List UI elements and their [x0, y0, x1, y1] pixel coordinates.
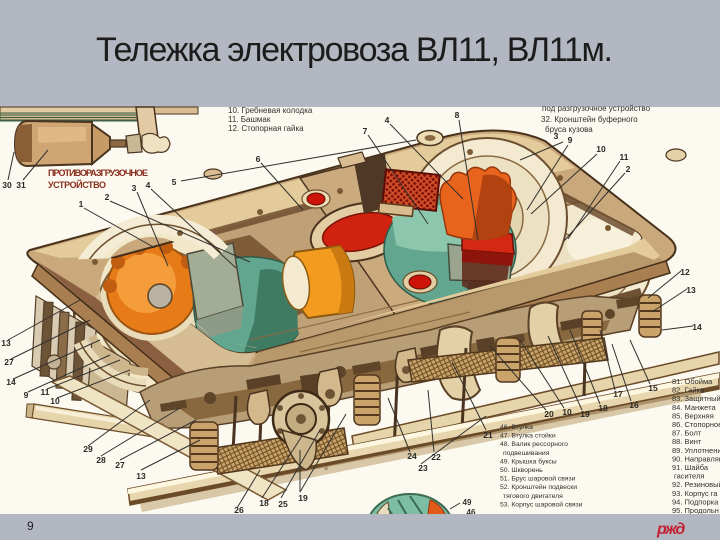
svg-text:50. Шкворень: 50. Шкворень — [500, 467, 543, 474]
svg-text:17: 17 — [613, 389, 623, 399]
svg-text:ржд: ржд — [656, 521, 685, 538]
svg-text:15: 15 — [648, 383, 658, 393]
svg-text:8: 8 — [455, 110, 460, 120]
svg-text:9: 9 — [24, 390, 29, 400]
svg-text:21: 21 — [483, 430, 493, 440]
svg-text:48. Валик рессорного: 48. Валик рессорного — [500, 441, 568, 448]
svg-text:25: 25 — [278, 499, 288, 509]
svg-text:22: 22 — [431, 452, 441, 462]
svg-text:13: 13 — [686, 285, 696, 295]
svg-text:18: 18 — [259, 498, 269, 508]
svg-text:28: 28 — [96, 455, 106, 465]
svg-text:31: 31 — [16, 180, 26, 190]
svg-text:49. Крышка буксы: 49. Крышка буксы — [500, 457, 557, 465]
svg-text:тягового двигателя: тягового двигателя — [503, 493, 563, 500]
svg-text:2: 2 — [626, 164, 631, 174]
svg-text:14: 14 — [6, 377, 16, 387]
svg-text:52. Кронштейн подвески: 52. Кронштейн подвески — [500, 483, 577, 491]
svg-text:19: 19 — [580, 409, 590, 419]
svg-text:26: 26 — [234, 505, 244, 515]
svg-text:10. Гребневая колодка: 10. Гребневая колодка — [228, 106, 313, 115]
svg-text:10: 10 — [596, 144, 606, 154]
svg-text:23: 23 — [418, 463, 428, 473]
svg-text:95. Продольн: 95. Продольн — [672, 506, 719, 515]
svg-text:14: 14 — [692, 322, 702, 332]
svg-text:29: 29 — [83, 444, 93, 454]
svg-text:27: 27 — [4, 357, 14, 367]
svg-text:47. Втулка стойки: 47. Втулка стойки — [500, 432, 556, 440]
svg-text:9: 9 — [27, 519, 34, 533]
svg-text:46. Втулка: 46. Втулка — [500, 424, 533, 431]
svg-text:13: 13 — [1, 338, 11, 348]
svg-text:УСТРОЙСТВО: УСТРОЙСТВО — [48, 179, 106, 190]
svg-text:11. Башмак: 11. Башмак — [228, 115, 271, 124]
svg-text:32. Кронштейн буферного: 32. Кронштейн буферного — [541, 115, 638, 124]
svg-text:4: 4 — [385, 115, 390, 125]
svg-text:3: 3 — [554, 131, 559, 141]
svg-text:Тележка электровоза ВЛ11, ВЛ11: Тележка электровоза ВЛ11, ВЛ11м. — [96, 31, 613, 69]
svg-text:5: 5 — [172, 177, 177, 187]
svg-text:51. Брус шаровой связи: 51. Брус шаровой связи — [500, 475, 576, 483]
svg-text:16: 16 — [629, 400, 639, 410]
svg-text:бруса кузова: бруса кузова — [545, 125, 593, 134]
svg-text:2: 2 — [105, 192, 110, 202]
svg-text:12. Стопорная гайка: 12. Стопорная гайка — [228, 124, 304, 133]
svg-text:подвешивания: подвешивания — [503, 450, 550, 457]
svg-text:1: 1 — [79, 199, 84, 209]
svg-text:9: 9 — [568, 135, 573, 145]
svg-text:20: 20 — [544, 409, 554, 419]
svg-text:27: 27 — [115, 460, 125, 470]
svg-text:6: 6 — [256, 154, 261, 164]
svg-text:10: 10 — [562, 407, 572, 417]
svg-text:30: 30 — [2, 180, 12, 190]
svg-text:49: 49 — [463, 498, 472, 507]
svg-text:3: 3 — [132, 183, 137, 193]
svg-text:12: 12 — [680, 267, 690, 277]
svg-text:13: 13 — [136, 471, 146, 481]
svg-text:под разгрузочное устройство: под разгрузочное устройство — [542, 104, 651, 113]
svg-text:24: 24 — [407, 451, 417, 461]
svg-text:18: 18 — [598, 403, 608, 413]
svg-text:11: 11 — [41, 387, 50, 397]
svg-text:19: 19 — [298, 493, 308, 503]
svg-text:4: 4 — [146, 180, 151, 190]
svg-text:ПРОТИВОРАЗГРУЗОЧНОЕ: ПРОТИВОРАЗГРУЗОЧНОЕ — [48, 168, 148, 178]
svg-text:10: 10 — [50, 396, 60, 406]
svg-text:11: 11 — [620, 152, 629, 162]
svg-text:53. Корпус шаровой связи: 53. Корпус шаровой связи — [500, 500, 583, 508]
svg-text:7: 7 — [363, 126, 368, 136]
